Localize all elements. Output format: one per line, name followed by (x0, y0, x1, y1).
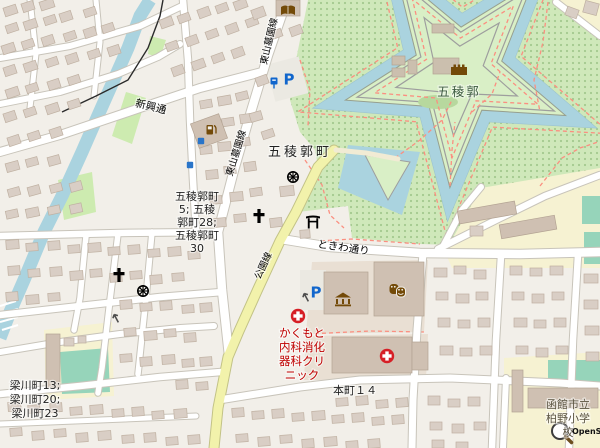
building (144, 331, 158, 341)
building (243, 161, 256, 172)
buddhist-temple-icon[interactable] (288, 172, 298, 182)
clinic-label-kakumoto: ニック (285, 368, 320, 382)
building (32, 431, 45, 441)
building (396, 398, 409, 408)
building (8, 266, 21, 276)
building (372, 417, 385, 426)
building (6, 240, 20, 250)
map-render: PP新興通東山墓園線東山墓園線公園線ときわ通り五稜郭町五稜郭五稜郭町5; 五稜郭… (0, 0, 600, 448)
building (280, 435, 293, 444)
building (70, 271, 84, 281)
building (478, 318, 490, 327)
building (556, 346, 568, 354)
fort-building (408, 60, 417, 74)
building (236, 434, 249, 443)
building (474, 422, 486, 430)
building (120, 354, 133, 363)
place-label-goryokaku-fort: 五稜郭 (437, 84, 481, 99)
large-building (412, 342, 428, 370)
building (270, 217, 283, 227)
building (250, 187, 263, 197)
building (70, 407, 83, 416)
building (28, 269, 41, 278)
building (554, 318, 566, 327)
pitch-right-mid-1 (582, 196, 600, 224)
map-canvas[interactable]: PP新興通東山墓園線東山墓園線公園線ときわ通り五稜郭町五稜郭五稜郭町5; 五稜郭… (0, 0, 600, 448)
building (534, 320, 546, 328)
building (454, 266, 466, 274)
building (164, 329, 177, 338)
building (456, 442, 468, 448)
address-label-goryokakucho-5-28-30: 郭町28; (177, 216, 217, 229)
road-school-west-road[interactable] (503, 378, 506, 448)
building (530, 268, 542, 276)
address-label-goryokakucho-5-28-30: 5; 五稜 (179, 203, 215, 216)
parking-icon[interactable]: P (311, 284, 322, 302)
building (200, 357, 213, 367)
building (480, 346, 492, 355)
hospital-cross-icon[interactable] (380, 349, 394, 363)
building (6, 292, 19, 302)
address-label-goryokakucho-5-28-30: 五稜郭町 (175, 229, 219, 242)
building (206, 169, 219, 179)
school-label-kashiwano: 函館市立 (546, 397, 590, 411)
place-label-goryokakucho: 五稜郭町 (268, 144, 332, 160)
building (436, 292, 448, 300)
building (468, 397, 480, 406)
building (376, 400, 389, 409)
building (352, 413, 365, 423)
building (448, 399, 460, 407)
svg-text:P: P (284, 71, 295, 89)
building (302, 439, 315, 448)
building (346, 441, 359, 448)
building (584, 274, 598, 283)
building (98, 431, 112, 441)
building (199, 99, 212, 109)
building (550, 266, 563, 275)
building (172, 273, 185, 282)
building (48, 293, 61, 302)
building (456, 294, 469, 303)
building (217, 95, 231, 106)
fort-building (432, 24, 454, 33)
building (140, 357, 153, 367)
building (76, 433, 89, 443)
building (122, 435, 135, 444)
building (108, 247, 121, 256)
building (552, 292, 564, 300)
address-label-goryokakucho-5-28-30: 30 (190, 242, 204, 255)
large-building (332, 337, 412, 373)
building (312, 411, 326, 421)
building (510, 266, 522, 275)
building (252, 411, 265, 420)
address-label-honcho-14: 本町１４ (333, 383, 377, 397)
building (392, 415, 405, 425)
building (356, 396, 369, 406)
building (300, 230, 311, 239)
fort-building (392, 68, 405, 77)
osm-attribution[interactable]: OpenStreetMap (572, 427, 600, 436)
building (234, 213, 247, 222)
building (150, 275, 163, 285)
building (458, 320, 470, 328)
building (440, 346, 453, 355)
clinic-cross-icon[interactable] (291, 309, 305, 323)
building (428, 396, 440, 405)
buddhist-temple-icon[interactable] (138, 286, 148, 296)
building (332, 415, 345, 424)
building (26, 243, 39, 252)
building (176, 380, 189, 390)
building (88, 243, 102, 253)
building (586, 352, 599, 361)
building (258, 437, 271, 447)
building (222, 117, 235, 127)
building (184, 333, 197, 343)
building (532, 294, 544, 303)
building (452, 424, 464, 433)
building (280, 185, 295, 196)
address-label-yanagawacho: 梁川町23 (12, 406, 59, 420)
building (144, 433, 157, 443)
building (470, 226, 483, 236)
building (512, 292, 524, 300)
building (120, 300, 133, 310)
building (188, 435, 201, 445)
building (168, 247, 182, 257)
building (124, 328, 137, 337)
school-label-kashiwano: 柏野小学 (546, 411, 590, 425)
building (132, 407, 145, 417)
building (140, 303, 153, 312)
clinic-label-kakumoto: 器科クリ (279, 354, 325, 368)
building (232, 408, 245, 418)
large-building (512, 370, 523, 412)
clinic-label-kakumoto: かくもと (279, 326, 325, 340)
address-label-yanagawacho: 梁川町13; (10, 378, 61, 392)
building (64, 338, 74, 346)
poi-square-icon[interactable] (198, 138, 204, 144)
building (474, 270, 486, 279)
clinic-label-kakumoto: 内科消化 (279, 340, 325, 354)
building (48, 241, 61, 251)
building (26, 295, 40, 305)
building (272, 409, 285, 419)
building (460, 348, 472, 356)
building (434, 268, 447, 277)
building (78, 336, 86, 343)
building (54, 429, 67, 438)
building (292, 413, 305, 422)
building (196, 382, 209, 391)
building (230, 191, 244, 201)
building (324, 437, 338, 447)
building (218, 141, 232, 151)
building (476, 292, 488, 300)
svg-text:P: P (311, 284, 322, 302)
building (166, 437, 179, 446)
parking-icon[interactable]: P (284, 71, 295, 89)
address-label-goryokakucho-5-28-30: 五稜郭町 (175, 190, 219, 203)
poi-square-icon[interactable] (187, 162, 193, 168)
building (438, 318, 450, 327)
building (336, 398, 349, 407)
building (536, 348, 548, 357)
building (148, 249, 161, 258)
building (50, 267, 63, 277)
building (430, 422, 442, 430)
building (112, 409, 125, 418)
building (182, 359, 195, 368)
building (130, 271, 143, 280)
fort-building (392, 56, 405, 65)
building (516, 346, 528, 354)
address-label-yanagawacho: 梁川町20; (10, 392, 61, 406)
building (200, 303, 213, 313)
building (174, 409, 188, 419)
building (432, 440, 444, 448)
building (90, 405, 104, 415)
building (10, 428, 23, 437)
building (182, 305, 195, 314)
building (68, 245, 81, 254)
building (128, 245, 141, 255)
building (514, 318, 527, 327)
building (160, 301, 173, 311)
building (162, 355, 176, 365)
building (585, 326, 599, 335)
building (584, 300, 598, 309)
building (368, 439, 381, 448)
building (152, 411, 165, 420)
large-building (324, 272, 368, 314)
building (90, 269, 103, 278)
